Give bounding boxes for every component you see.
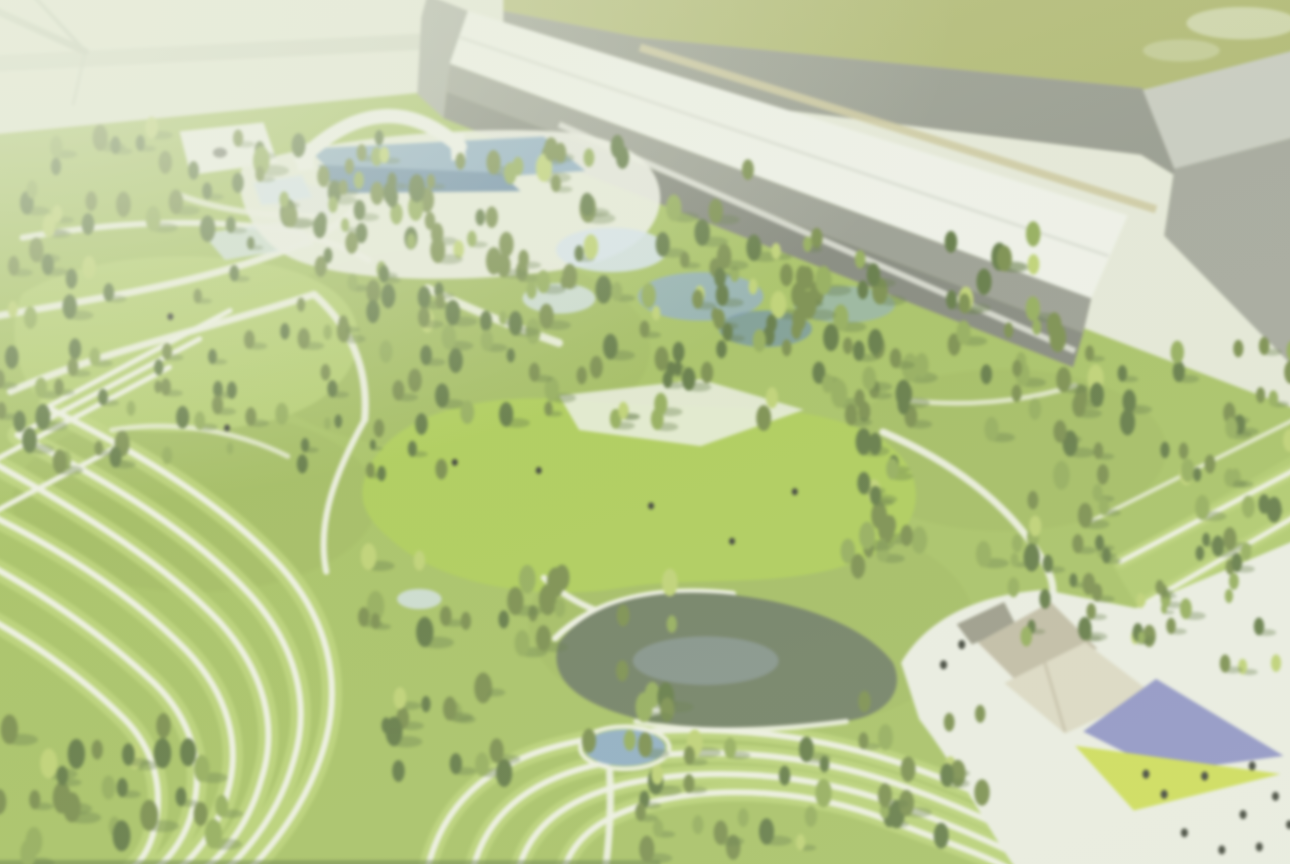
tree bbox=[357, 144, 367, 161]
tree bbox=[324, 248, 333, 264]
tree bbox=[714, 267, 726, 287]
tree bbox=[154, 359, 163, 375]
tree bbox=[1229, 573, 1239, 590]
tree bbox=[1171, 341, 1184, 364]
tree bbox=[316, 212, 327, 230]
tree bbox=[529, 363, 540, 382]
tree bbox=[975, 705, 985, 723]
park-rendering bbox=[0, 0, 1290, 864]
tree bbox=[859, 522, 875, 550]
tree bbox=[1269, 390, 1279, 406]
tree bbox=[1099, 498, 1109, 516]
tree bbox=[638, 732, 652, 757]
tree bbox=[103, 283, 114, 302]
tree bbox=[507, 348, 515, 362]
tree bbox=[792, 307, 806, 331]
tree bbox=[1181, 459, 1195, 482]
tree bbox=[194, 802, 208, 826]
tree bbox=[1049, 323, 1066, 352]
person-dot bbox=[1201, 772, 1208, 781]
person-dot bbox=[1272, 792, 1279, 801]
tree bbox=[722, 323, 733, 341]
tree bbox=[1078, 503, 1093, 528]
tree bbox=[682, 367, 696, 390]
tree bbox=[805, 806, 817, 827]
tree bbox=[1225, 589, 1233, 603]
tree bbox=[851, 554, 865, 579]
tree bbox=[486, 150, 500, 174]
tree bbox=[1078, 617, 1092, 640]
tree bbox=[692, 290, 703, 309]
tree bbox=[415, 413, 428, 435]
tree bbox=[345, 232, 358, 254]
tree bbox=[475, 752, 489, 776]
tree bbox=[611, 135, 625, 159]
tree bbox=[724, 738, 736, 759]
tree bbox=[145, 117, 158, 139]
tree bbox=[467, 231, 477, 247]
tree bbox=[1259, 337, 1270, 355]
tree bbox=[611, 282, 622, 301]
tree bbox=[867, 263, 880, 286]
tree bbox=[1256, 387, 1265, 403]
tree bbox=[803, 236, 812, 252]
tree bbox=[1012, 534, 1023, 552]
tree bbox=[562, 264, 577, 290]
tree bbox=[205, 819, 222, 849]
tree bbox=[154, 380, 161, 393]
tree bbox=[512, 157, 523, 176]
tree bbox=[555, 143, 566, 163]
tree bbox=[716, 340, 727, 358]
tree bbox=[901, 756, 916, 782]
tree bbox=[215, 795, 228, 817]
tree bbox=[22, 427, 37, 453]
tree bbox=[366, 463, 375, 478]
tree bbox=[811, 228, 823, 248]
tree bbox=[92, 740, 103, 760]
tree bbox=[233, 130, 243, 147]
tree bbox=[618, 402, 628, 420]
tree bbox=[1195, 495, 1209, 520]
tree bbox=[580, 193, 594, 216]
tree bbox=[639, 836, 654, 863]
tree bbox=[934, 823, 949, 849]
tree bbox=[890, 348, 902, 368]
tree bbox=[448, 348, 462, 373]
tree bbox=[878, 783, 892, 807]
tree bbox=[490, 738, 504, 763]
tree bbox=[57, 766, 68, 786]
pavilion-door bbox=[213, 148, 227, 158]
tree bbox=[169, 189, 183, 214]
tree bbox=[680, 252, 690, 268]
person-dot bbox=[940, 660, 947, 669]
tree bbox=[617, 604, 630, 626]
tree bbox=[392, 760, 405, 782]
tree bbox=[339, 180, 348, 196]
pond-sheen bbox=[633, 636, 779, 685]
tree bbox=[62, 294, 76, 319]
tree bbox=[878, 724, 893, 750]
person-dot bbox=[1181, 828, 1188, 837]
tree bbox=[244, 330, 255, 349]
tree bbox=[946, 290, 957, 309]
tree bbox=[407, 234, 416, 249]
tree bbox=[859, 732, 869, 749]
tree bbox=[1043, 555, 1053, 573]
tree bbox=[43, 214, 56, 237]
tree bbox=[430, 237, 445, 263]
tree bbox=[361, 543, 377, 570]
tree bbox=[200, 215, 215, 242]
tree bbox=[1029, 398, 1042, 420]
tree bbox=[815, 779, 831, 808]
tree bbox=[782, 339, 792, 356]
tree bbox=[694, 219, 710, 246]
tree bbox=[635, 692, 652, 722]
tree bbox=[63, 792, 81, 822]
tree bbox=[127, 401, 136, 416]
tree bbox=[324, 417, 331, 429]
tree bbox=[35, 404, 50, 430]
tree bbox=[301, 438, 309, 452]
tree bbox=[498, 610, 509, 628]
tree bbox=[297, 454, 308, 473]
tree bbox=[857, 472, 870, 494]
tree bbox=[159, 151, 172, 174]
tree bbox=[27, 180, 38, 198]
tree bbox=[226, 216, 236, 233]
tree bbox=[392, 380, 404, 400]
tree bbox=[507, 587, 523, 615]
tree bbox=[855, 250, 866, 268]
tree bbox=[1224, 469, 1235, 487]
tree bbox=[176, 406, 189, 429]
tree bbox=[227, 442, 234, 454]
tree bbox=[845, 404, 858, 426]
tree bbox=[684, 746, 695, 765]
tree bbox=[738, 808, 749, 827]
tree bbox=[109, 446, 121, 467]
tree bbox=[940, 763, 954, 787]
tree bbox=[281, 207, 291, 224]
tree bbox=[29, 237, 43, 262]
tree bbox=[370, 439, 376, 450]
tree bbox=[1056, 367, 1071, 393]
tree bbox=[370, 182, 383, 205]
tree bbox=[110, 136, 120, 154]
tree bbox=[408, 441, 417, 457]
person-dot bbox=[167, 313, 173, 320]
tree bbox=[156, 713, 171, 738]
tree bbox=[82, 213, 95, 235]
tree bbox=[213, 381, 223, 398]
tree bbox=[8, 256, 19, 276]
tree bbox=[753, 329, 766, 352]
tree bbox=[136, 135, 145, 151]
person-dot bbox=[1256, 842, 1263, 851]
tree bbox=[193, 289, 202, 304]
tree bbox=[280, 323, 290, 340]
tree bbox=[956, 320, 970, 344]
tree bbox=[381, 284, 395, 308]
tree bbox=[1173, 361, 1185, 382]
tree bbox=[1004, 322, 1013, 338]
tree bbox=[408, 368, 422, 392]
tree bbox=[756, 405, 771, 431]
tree bbox=[885, 515, 896, 535]
tree bbox=[486, 206, 498, 227]
tree bbox=[1021, 626, 1033, 646]
tree bbox=[590, 356, 603, 378]
tree bbox=[354, 171, 364, 189]
tree bbox=[98, 389, 108, 406]
person-dot bbox=[729, 538, 735, 545]
tree bbox=[460, 400, 474, 424]
tree bbox=[945, 231, 958, 253]
tree bbox=[212, 395, 223, 414]
tree bbox=[624, 730, 636, 751]
tree bbox=[1193, 468, 1201, 482]
tree bbox=[381, 717, 390, 733]
tree bbox=[116, 192, 131, 218]
tree bbox=[1223, 527, 1236, 550]
tree bbox=[616, 660, 628, 681]
tree bbox=[418, 307, 430, 328]
tree bbox=[113, 820, 131, 851]
tree bbox=[759, 818, 774, 845]
tree bbox=[1202, 533, 1210, 547]
tree bbox=[1082, 573, 1095, 595]
tree bbox=[1271, 654, 1281, 672]
tree bbox=[976, 541, 991, 567]
tree bbox=[461, 612, 471, 630]
tree bbox=[911, 526, 927, 554]
tree bbox=[823, 324, 839, 351]
tree bbox=[13, 411, 25, 432]
tree bbox=[1026, 221, 1041, 246]
tree bbox=[194, 755, 210, 782]
tree bbox=[481, 330, 493, 351]
tree bbox=[1225, 417, 1237, 438]
tree bbox=[1258, 494, 1269, 514]
tree bbox=[1012, 360, 1022, 377]
tree bbox=[651, 408, 664, 430]
tree bbox=[868, 329, 883, 355]
tree bbox=[766, 314, 777, 332]
tree bbox=[771, 243, 781, 259]
tree bbox=[450, 753, 462, 774]
tree bbox=[900, 525, 912, 546]
tree bbox=[68, 739, 85, 769]
tree bbox=[255, 166, 264, 182]
tree bbox=[640, 320, 650, 337]
tree bbox=[298, 328, 310, 349]
tree bbox=[1254, 617, 1264, 635]
tree bbox=[194, 411, 205, 430]
person-dot bbox=[1218, 845, 1225, 854]
tree bbox=[366, 300, 379, 323]
tree bbox=[394, 687, 407, 709]
tree bbox=[366, 280, 380, 304]
tree bbox=[1008, 577, 1020, 597]
tree bbox=[1053, 461, 1070, 490]
tree bbox=[539, 304, 554, 330]
tree bbox=[1097, 464, 1109, 484]
tree bbox=[89, 347, 100, 366]
tree bbox=[456, 153, 466, 170]
tree bbox=[146, 206, 161, 232]
tree bbox=[1090, 383, 1104, 407]
tree bbox=[24, 306, 37, 328]
tree bbox=[666, 194, 681, 221]
tree bbox=[709, 199, 723, 224]
tree bbox=[279, 191, 289, 207]
tree bbox=[377, 466, 386, 481]
tree bbox=[1028, 491, 1039, 510]
tree bbox=[651, 764, 663, 784]
tree bbox=[652, 306, 661, 321]
person-dot bbox=[1142, 770, 1149, 779]
tree bbox=[1093, 484, 1103, 501]
tree bbox=[334, 414, 342, 428]
tree bbox=[317, 166, 329, 187]
tree bbox=[499, 232, 514, 257]
tree bbox=[292, 133, 306, 157]
tree bbox=[667, 615, 677, 632]
tree bbox=[508, 311, 522, 336]
tree bbox=[858, 691, 870, 712]
tree bbox=[418, 286, 431, 308]
tree bbox=[202, 182, 212, 199]
tree bbox=[154, 738, 172, 768]
smoke-wisp bbox=[1143, 39, 1220, 61]
tree bbox=[40, 749, 57, 779]
tree bbox=[584, 148, 595, 167]
tree bbox=[574, 245, 583, 261]
tree bbox=[441, 324, 456, 350]
tree bbox=[68, 358, 79, 377]
tree bbox=[122, 743, 135, 765]
tree bbox=[379, 147, 389, 164]
tree bbox=[1053, 420, 1066, 443]
tree bbox=[66, 268, 78, 288]
tree bbox=[641, 283, 655, 308]
tree bbox=[1136, 593, 1145, 608]
tree bbox=[673, 342, 685, 363]
tree bbox=[1118, 365, 1128, 382]
tree bbox=[770, 291, 786, 319]
tree bbox=[229, 265, 239, 281]
tree bbox=[683, 774, 694, 793]
tree bbox=[701, 362, 713, 384]
tree bbox=[915, 353, 929, 377]
tree bbox=[1120, 409, 1135, 435]
tree bbox=[870, 486, 881, 505]
tree bbox=[53, 449, 67, 473]
tree bbox=[5, 345, 19, 368]
tree bbox=[1196, 546, 1205, 561]
tree bbox=[50, 136, 63, 158]
tree bbox=[1233, 340, 1243, 357]
tree bbox=[416, 617, 433, 647]
tree bbox=[162, 447, 172, 465]
tree bbox=[584, 234, 599, 259]
tree bbox=[1160, 442, 1169, 458]
tree bbox=[1085, 345, 1094, 361]
tree bbox=[780, 264, 793, 287]
tree bbox=[345, 158, 354, 174]
person-dot bbox=[1249, 761, 1256, 770]
tree bbox=[1166, 618, 1176, 634]
tree bbox=[297, 298, 305, 312]
tree bbox=[435, 383, 449, 407]
tree bbox=[425, 212, 435, 230]
tree bbox=[275, 403, 288, 425]
tree bbox=[93, 125, 108, 151]
tree bbox=[799, 737, 814, 763]
tree bbox=[1179, 443, 1189, 460]
person-dot bbox=[648, 502, 654, 509]
tree bbox=[582, 729, 596, 753]
tree bbox=[547, 567, 564, 597]
tree bbox=[897, 394, 909, 415]
bottom-edge-shadow bbox=[0, 860, 660, 864]
tree bbox=[1242, 495, 1255, 517]
tree bbox=[435, 459, 447, 480]
tree bbox=[479, 674, 491, 695]
tree bbox=[976, 269, 991, 295]
tree bbox=[347, 274, 357, 291]
tree bbox=[374, 419, 385, 437]
tree bbox=[188, 161, 199, 180]
tree bbox=[1029, 516, 1041, 537]
tree bbox=[82, 256, 95, 279]
tree bbox=[716, 284, 729, 306]
tree bbox=[536, 625, 551, 651]
tree bbox=[766, 387, 778, 408]
tree bbox=[475, 209, 485, 226]
tree bbox=[746, 234, 761, 261]
tree bbox=[1032, 319, 1041, 335]
tree bbox=[1205, 455, 1216, 474]
tree bbox=[421, 696, 430, 712]
tree bbox=[692, 815, 703, 834]
tree bbox=[595, 275, 611, 303]
tree bbox=[1095, 535, 1104, 551]
tree bbox=[857, 280, 868, 299]
tree bbox=[480, 311, 492, 332]
tree bbox=[862, 366, 876, 390]
tree bbox=[328, 196, 338, 213]
tree bbox=[42, 254, 54, 275]
tree bbox=[886, 458, 898, 479]
tree bbox=[208, 349, 217, 364]
tree bbox=[321, 364, 331, 381]
tree bbox=[526, 281, 536, 299]
tree bbox=[371, 613, 380, 629]
tree bbox=[227, 382, 237, 399]
person-dot bbox=[536, 467, 542, 474]
tree bbox=[820, 756, 830, 773]
person-dot bbox=[958, 640, 965, 649]
tree bbox=[1011, 553, 1019, 567]
tree bbox=[577, 367, 587, 385]
tree bbox=[1028, 254, 1040, 274]
tree bbox=[519, 565, 536, 594]
tree bbox=[1072, 393, 1086, 417]
